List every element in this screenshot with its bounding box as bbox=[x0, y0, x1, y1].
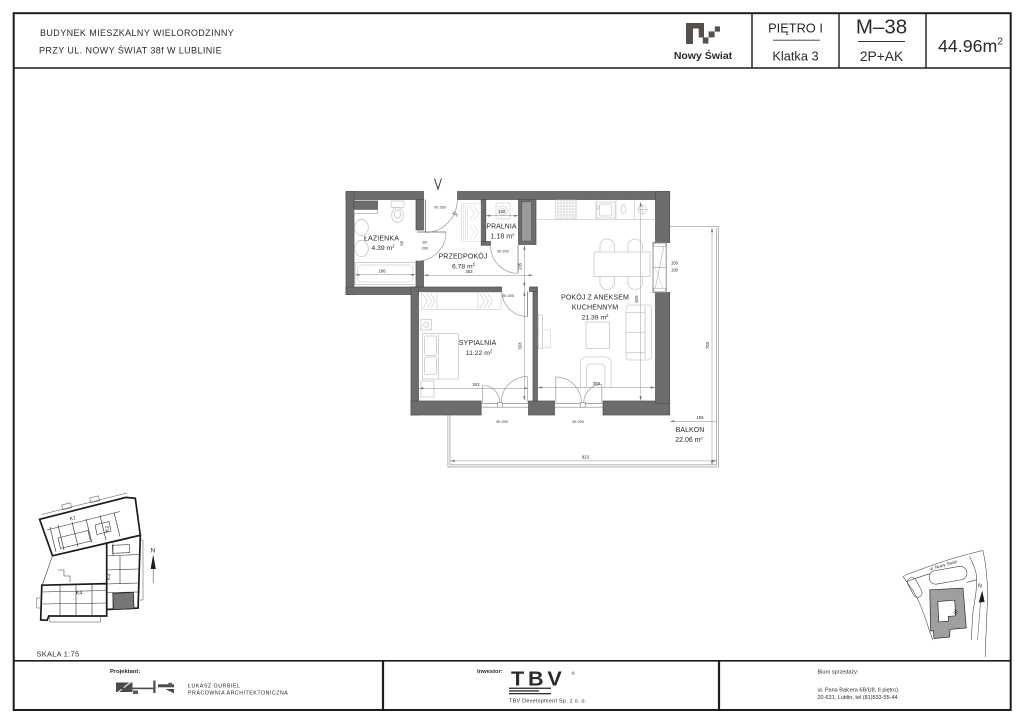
svg-text:K4: K4 bbox=[76, 591, 82, 597]
svg-text:Nowy Świat: Nowy Świat bbox=[674, 49, 733, 62]
svg-text:PRZY UL. NOWY ŚWIAT 38f W LUBL: PRZY UL. NOWY ŚWIAT 38f W LUBLINIE bbox=[39, 45, 222, 56]
svg-text:190: 190 bbox=[671, 268, 679, 273]
svg-text:135: 135 bbox=[518, 262, 523, 270]
svg-text:SE: SE bbox=[399, 240, 404, 246]
svg-text:186: 186 bbox=[378, 268, 386, 273]
svg-text:159: 159 bbox=[696, 415, 704, 420]
svg-text:K2: K2 bbox=[105, 525, 111, 532]
svg-text:Biuro sprzedaży:: Biuro sprzedaży: bbox=[818, 670, 859, 676]
svg-text:200: 200 bbox=[422, 247, 428, 251]
svg-text:100: 100 bbox=[498, 209, 506, 214]
svg-text:PRZEDPOKÓJ: PRZEDPOKÓJ bbox=[438, 252, 487, 261]
svg-text:343: 343 bbox=[472, 382, 480, 387]
svg-text:823: 823 bbox=[582, 454, 590, 459]
svg-text:90 200: 90 200 bbox=[572, 420, 584, 424]
svg-text:353: 353 bbox=[465, 269, 473, 274]
svg-text:150: 150 bbox=[671, 261, 679, 266]
svg-text:PIĘTRO I: PIĘTRO I bbox=[768, 21, 823, 36]
svg-text:KUCHENNYM: KUCHENNYM bbox=[572, 304, 619, 312]
svg-text:4.39 m2: 4.39 m2 bbox=[371, 244, 395, 253]
svg-text:21.39 m2: 21.39 m2 bbox=[582, 313, 610, 322]
svg-text:90 200: 90 200 bbox=[496, 420, 508, 424]
svg-text:90 200: 90 200 bbox=[502, 294, 514, 298]
svg-text:PRACOWNIA ARCHITEKTONICZNA: PRACOWNIA ARCHITEKTONICZNA bbox=[188, 690, 288, 696]
svg-text:ŁUKASZ GURBIEL: ŁUKASZ GURBIEL bbox=[188, 684, 240, 690]
svg-text:90 200: 90 200 bbox=[497, 250, 509, 254]
svg-text:SKALA 1:75: SKALA 1:75 bbox=[37, 650, 80, 659]
svg-text:BALKON: BALKON bbox=[676, 427, 705, 434]
svg-text:ŁAZIENKA: ŁAZIENKA bbox=[364, 235, 399, 243]
svg-text:Klatka 3: Klatka 3 bbox=[772, 49, 818, 64]
svg-text:BUDYNEK MIESZKALNY WIELORODZIN: BUDYNEK MIESZKALNY WIELORODZINNY bbox=[40, 28, 234, 38]
svg-text:N: N bbox=[151, 548, 156, 555]
svg-text:Inwestor:: Inwestor: bbox=[477, 669, 503, 675]
svg-text:TBV Development Sp. z o. o.: TBV Development Sp. z o. o. bbox=[509, 699, 587, 705]
svg-text:11.22 m2: 11.22 m2 bbox=[466, 349, 493, 358]
svg-text:POKÓJ Z ANEKSEM: POKÓJ Z ANEKSEM bbox=[561, 293, 629, 302]
svg-text:K3: K3 bbox=[106, 574, 112, 581]
svg-text:TBV: TBV bbox=[511, 668, 566, 690]
svg-text:SYPIALNIA: SYPIALNIA bbox=[459, 339, 497, 347]
svg-text:90 200: 90 200 bbox=[434, 206, 446, 210]
svg-text:PRALNIA: PRALNIA bbox=[486, 224, 516, 231]
svg-text:44.96m2: 44.96m2 bbox=[938, 36, 1003, 56]
svg-text:333: 333 bbox=[518, 342, 523, 350]
svg-text:80: 80 bbox=[423, 241, 427, 245]
svg-text:20-631, Lublin, tel (81)533-55: 20-631, Lublin, tel (81)533-55-44 bbox=[818, 695, 898, 701]
svg-text:625: 625 bbox=[634, 295, 639, 303]
svg-text:2P+AK: 2P+AK bbox=[860, 49, 904, 64]
svg-text:ul. Pana Balcera 6B/U8, II pię: ul. Pana Balcera 6B/U8, II piętro), bbox=[818, 688, 900, 694]
svg-text:Projektant:: Projektant: bbox=[110, 669, 140, 675]
svg-text:1.18 m2: 1.18 m2 bbox=[491, 232, 515, 241]
svg-text:22.06 m2: 22.06 m2 bbox=[675, 436, 703, 445]
svg-text:M–38: M–38 bbox=[856, 16, 907, 39]
svg-text:703: 703 bbox=[705, 341, 710, 349]
svg-text:358: 358 bbox=[593, 381, 601, 386]
